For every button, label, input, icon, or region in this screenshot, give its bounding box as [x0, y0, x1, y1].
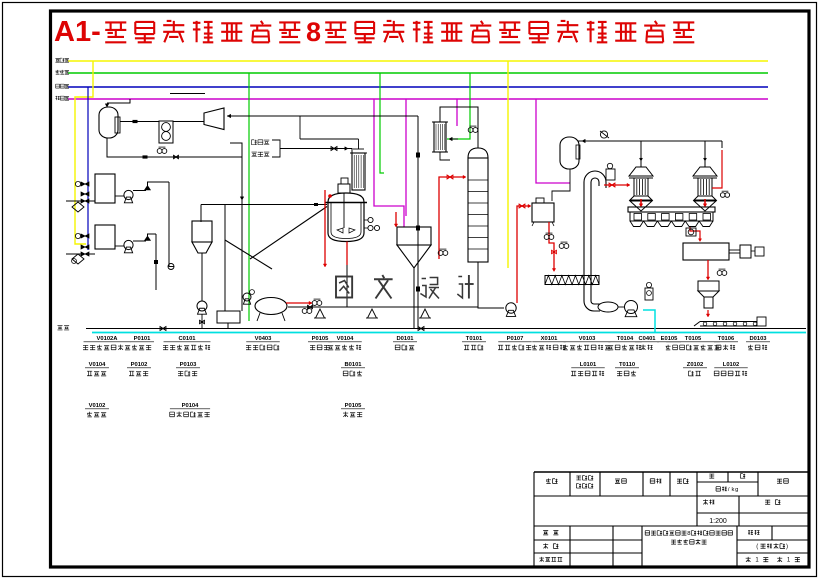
svg-text:8: 8 [306, 17, 321, 47]
svg-text:D0103: D0103 [749, 336, 767, 342]
svg-text:P0103: P0103 [180, 362, 198, 368]
svg-text:(: ( [756, 544, 758, 550]
svg-text:V0403: V0403 [255, 336, 273, 342]
svg-text:T0110: T0110 [619, 362, 635, 368]
svg-text:X0101: X0101 [541, 336, 559, 342]
svg-text:8: 8 [687, 531, 690, 537]
svg-text:P0105: P0105 [312, 336, 330, 342]
svg-text:k: k [732, 487, 735, 493]
svg-text:T0105: T0105 [685, 336, 702, 342]
svg-text:C0401: C0401 [638, 336, 656, 342]
svg-text:T0101: T0101 [466, 336, 483, 342]
svg-text:P0101: P0101 [134, 336, 152, 342]
svg-text:B0101: B0101 [344, 362, 362, 368]
svg-text:T0106: T0106 [718, 336, 735, 342]
svg-text:T0104: T0104 [617, 336, 634, 342]
svg-text:D0101: D0101 [396, 336, 414, 342]
svg-text:L0102: L0102 [723, 362, 739, 368]
svg-text:): ) [786, 544, 788, 550]
svg-text:V0103: V0103 [579, 336, 597, 342]
svg-text:E0105: E0105 [661, 336, 679, 342]
svg-text:V0104: V0104 [89, 362, 107, 368]
svg-text:V0104: V0104 [337, 336, 355, 342]
svg-text:A1-: A1- [54, 16, 101, 48]
svg-text:P0107: P0107 [507, 336, 524, 342]
svg-text:g: g [735, 487, 738, 493]
svg-text:V0102A: V0102A [97, 336, 119, 342]
svg-text:P0102: P0102 [131, 362, 148, 368]
svg-text:1:200: 1:200 [709, 518, 727, 525]
svg-text:L0101: L0101 [580, 362, 597, 368]
svg-text:P0105: P0105 [345, 403, 363, 409]
svg-text:Z0102: Z0102 [687, 362, 703, 368]
svg-text:C0101: C0101 [178, 336, 196, 342]
svg-text:P0104: P0104 [182, 403, 200, 409]
svg-text:V0102: V0102 [89, 403, 106, 409]
